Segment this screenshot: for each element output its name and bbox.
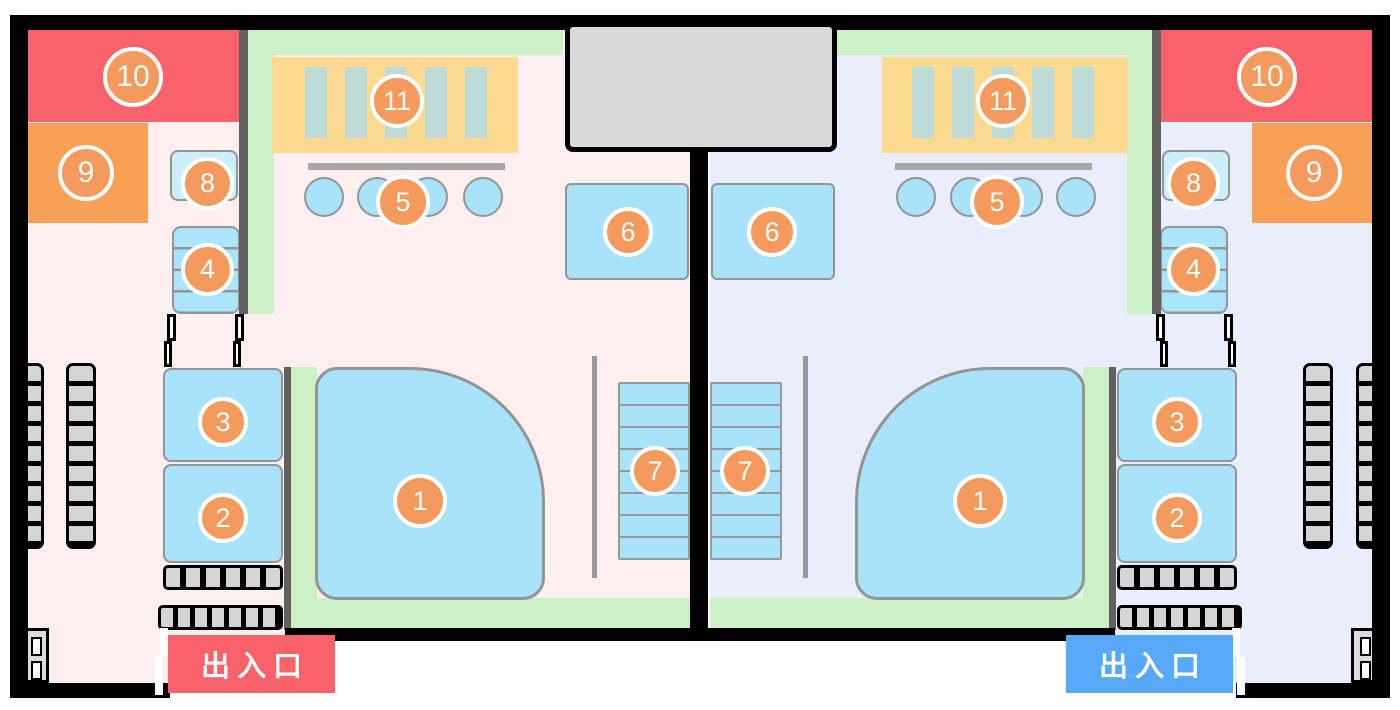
marker-7-right: 7 [720, 446, 770, 496]
marker-3-right: 3 [1152, 397, 1202, 447]
door-post [167, 314, 176, 341]
deck-side-left [248, 30, 274, 314]
partition-bath-right [1109, 367, 1116, 630]
marker-6-right: 6 [747, 207, 797, 257]
marker-1-right: 1 [953, 474, 1007, 528]
deck-side-right [1127, 30, 1153, 314]
bench-row [163, 565, 283, 590]
marker-6-left: 6 [603, 207, 653, 257]
center-top-block [565, 22, 837, 152]
marker-3-left: 3 [198, 397, 248, 447]
door-post [1224, 314, 1233, 341]
bath-deck-right-bottom [710, 598, 1109, 630]
bath-deck-left-bottom [291, 598, 690, 630]
marker-7-left: 7 [630, 446, 680, 496]
wall-bottom-right [1236, 683, 1390, 698]
door-post [235, 314, 244, 341]
handrail-left [592, 356, 597, 578]
deck-top-left [248, 30, 563, 55]
locker-column [66, 363, 96, 549]
wall-left [10, 15, 28, 698]
door-post [1228, 341, 1236, 367]
marker-2-left: 2 [198, 493, 248, 543]
door-post [233, 341, 241, 367]
marker-4-left: 4 [181, 243, 234, 296]
machine-slot [1360, 637, 1371, 656]
wash-basin [896, 177, 936, 217]
machine-slot [31, 661, 42, 680]
wall-bottom-left [10, 683, 170, 698]
door-gap [1232, 628, 1240, 657]
handrail-right [803, 356, 808, 578]
marker-10-left: 10 [103, 47, 163, 107]
deck-top-right [837, 30, 1153, 55]
partition-corridor-right [1152, 30, 1161, 314]
bath-deck-left-strip [291, 367, 317, 630]
marker-2-right: 2 [1152, 493, 1202, 543]
entrance-left: 出入口 [168, 635, 335, 693]
counter-bar-right [895, 163, 1092, 170]
door-post [1160, 341, 1168, 367]
marker-5-right: 5 [970, 175, 1024, 229]
locker-column [1303, 363, 1333, 549]
marker-11-left: 11 [370, 74, 424, 128]
bathhouse-floorplan: 出入口 出入口 10 9 8 4 11 5 6 3 2 1 7 7 6 11 5… [0, 0, 1400, 710]
machine-slot [31, 637, 42, 656]
bench-row [1117, 605, 1242, 630]
counter-bar-left [308, 163, 505, 170]
marker-1-left: 1 [393, 474, 447, 528]
bench-row [158, 605, 283, 630]
door-gap [1237, 657, 1245, 695]
marker-8-right: 8 [1167, 157, 1220, 210]
marker-5-left: 5 [376, 175, 430, 229]
bench-row [1117, 565, 1237, 590]
entrance-right: 出入口 [1066, 635, 1233, 693]
partition-corridor-left [239, 30, 248, 314]
wash-basin [304, 177, 344, 217]
marker-10-right: 10 [1237, 47, 1297, 107]
door-post [164, 341, 172, 367]
marker-9-right: 9 [1286, 145, 1342, 201]
wall-right [1372, 15, 1390, 698]
wash-basin [1056, 177, 1096, 217]
marker-8-left: 8 [181, 157, 234, 210]
machine-slot [1360, 661, 1371, 680]
marker-11-right: 11 [976, 74, 1030, 128]
marker-4-right: 4 [1167, 243, 1220, 296]
wash-basin [463, 177, 503, 217]
partition-bath-left [284, 367, 291, 630]
door-gap [160, 628, 168, 657]
bath-deck-right-strip [1083, 367, 1109, 630]
door-post [1156, 314, 1165, 341]
door-gap [155, 657, 163, 695]
marker-9-left: 9 [58, 145, 114, 201]
wall-center-divider [690, 150, 708, 641]
